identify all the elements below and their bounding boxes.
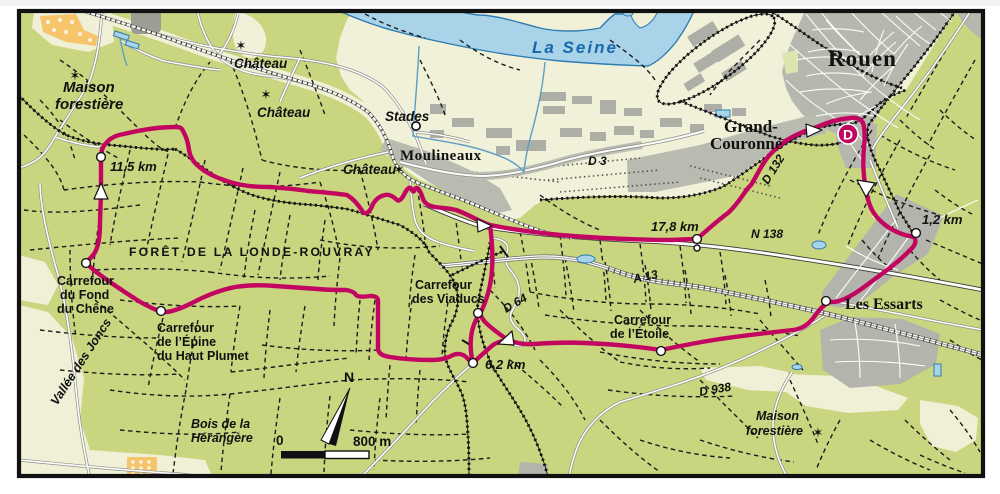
svg-text:forestière: forestière (746, 424, 803, 438)
svg-text:Bois de la: Bois de la (191, 417, 250, 431)
svg-text:Château: Château (343, 162, 397, 177)
svg-text:Maison: Maison (756, 409, 799, 423)
svg-text:de l’Épine: de l’Épine (157, 334, 216, 349)
svg-text:du Haut Plumet: du Haut Plumet (157, 349, 250, 363)
svg-text:forestière: forestière (55, 96, 123, 113)
svg-text:Carrefour: Carrefour (614, 313, 671, 327)
svg-text:Stades: Stades (385, 109, 430, 124)
svg-text:N 138: N 138 (751, 227, 783, 241)
svg-text:Château: Château (257, 105, 311, 120)
svg-text:du Fond: du Fond (60, 288, 109, 302)
svg-text:Hérangère: Hérangère (191, 431, 253, 445)
svg-text:Les Essarts: Les Essarts (845, 296, 923, 313)
svg-text:D: D (843, 127, 853, 143)
svg-text:17,8 km: 17,8 km (651, 219, 699, 234)
svg-text:La Seine: La Seine (532, 38, 618, 57)
svg-text:✶: ✶ (813, 425, 824, 440)
svg-text:Moulineaux: Moulineaux (400, 148, 482, 164)
svg-text:du Chêne: du Chêne (57, 302, 114, 316)
svg-text:Château: Château (234, 56, 288, 71)
svg-text:Couronne: Couronne (710, 134, 783, 153)
svg-text:N: N (344, 369, 354, 385)
svg-text:Carrefour: Carrefour (57, 274, 114, 288)
svg-text:✶: ✶ (236, 38, 247, 53)
svg-text:FORÊT DE LA LONDE-ROUVRAY: FORÊT DE LA LONDE-ROUVRAY (129, 244, 375, 259)
svg-text:6,2 km: 6,2 km (485, 357, 526, 372)
svg-text:✶: ✶ (261, 87, 272, 102)
svg-text:de l’Étoile: de l’Étoile (610, 326, 669, 341)
svg-text:Carrefour: Carrefour (157, 321, 214, 335)
svg-text:des Viaducs: des Viaducs (412, 292, 485, 306)
svg-text:Rouen: Rouen (828, 46, 897, 71)
svg-text:Maison: Maison (63, 79, 115, 96)
svg-text:800 m: 800 m (353, 434, 391, 449)
svg-text:11,5 km: 11,5 km (110, 159, 157, 174)
svg-text:Carrefour: Carrefour (415, 278, 472, 292)
svg-text:D 3: D 3 (588, 154, 607, 168)
svg-text:0: 0 (276, 433, 284, 448)
svg-text:1,2 km: 1,2 km (922, 212, 963, 227)
